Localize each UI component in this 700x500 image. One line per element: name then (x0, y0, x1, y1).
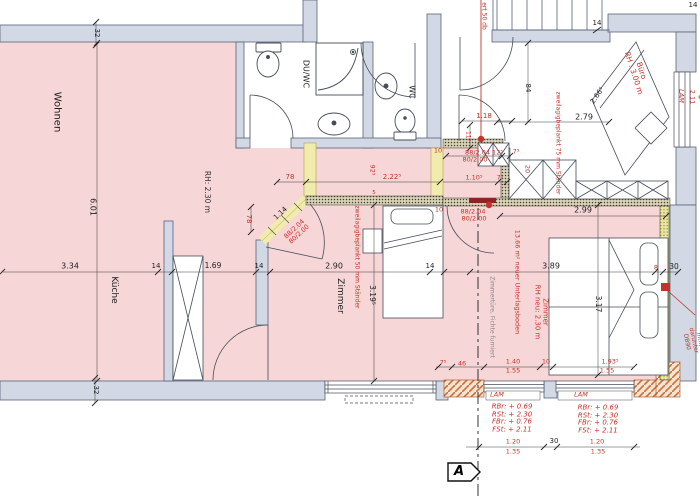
red-marker-dot-2 (486, 202, 492, 208)
pillow-1 (640, 243, 658, 285)
bed-buero-diagonal (592, 42, 669, 175)
wardrobe-a (509, 160, 576, 199)
window-buero (674, 72, 690, 147)
red-marker-square (661, 283, 670, 291)
shower-tray (316, 43, 363, 95)
pillow-2 (640, 292, 658, 338)
bathroom-fixtures (256, 43, 416, 140)
window-sill-2 (558, 391, 632, 400)
toilet-bowl-wc (395, 109, 415, 133)
staircase (493, 0, 610, 30)
floorplan-drawing (0, 0, 700, 500)
nightstand (363, 229, 382, 253)
pillow-single (391, 209, 433, 224)
section-marker-flag (448, 463, 480, 481)
window-bedroom-1 (484, 381, 544, 392)
toilet-tank-wc (394, 132, 416, 140)
window-zimmer (325, 381, 436, 393)
lintel-bar (469, 198, 496, 203)
window-sill-1 (486, 391, 540, 400)
window-bedroom-2 (556, 381, 634, 392)
red-marker-dot-1 (478, 136, 484, 142)
floorplan-canvas: WohnenKücheDU/WCWCZimmerRH: 2.30 m6.013.… (0, 0, 700, 500)
toilet-bowl-duwc (257, 51, 279, 77)
radiator (345, 396, 413, 403)
shelf-c (478, 143, 509, 166)
